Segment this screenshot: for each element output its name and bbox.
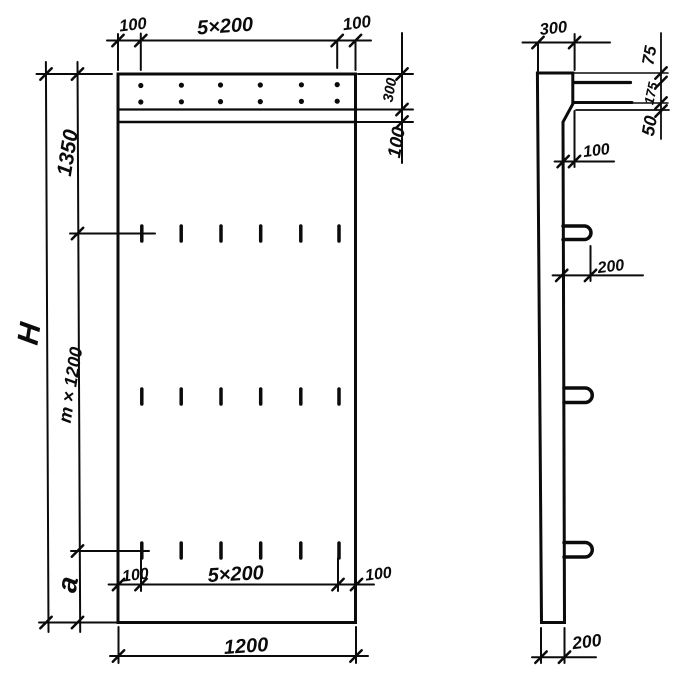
svg-text:200: 200 [596, 257, 626, 277]
svg-text:1200: 1200 [223, 634, 269, 659]
svg-text:50: 50 [638, 114, 661, 137]
svg-text:200: 200 [570, 630, 603, 654]
svg-text:100: 100 [342, 12, 373, 34]
svg-text:m × 1200: m × 1200 [55, 346, 87, 425]
svg-text:100: 100 [364, 564, 393, 584]
svg-text:300: 300 [539, 18, 569, 39]
svg-text:H: H [12, 319, 48, 347]
svg-text:100: 100 [582, 141, 611, 161]
svg-text:5×200: 5×200 [207, 562, 264, 587]
svg-text:100: 100 [118, 15, 148, 36]
svg-text:75: 75 [639, 44, 661, 66]
svg-text:300: 300 [381, 77, 401, 104]
svg-text:5×200: 5×200 [196, 14, 254, 40]
svg-text:100: 100 [383, 125, 409, 160]
svg-text:175: 175 [641, 80, 660, 106]
svg-text:100: 100 [121, 565, 150, 585]
